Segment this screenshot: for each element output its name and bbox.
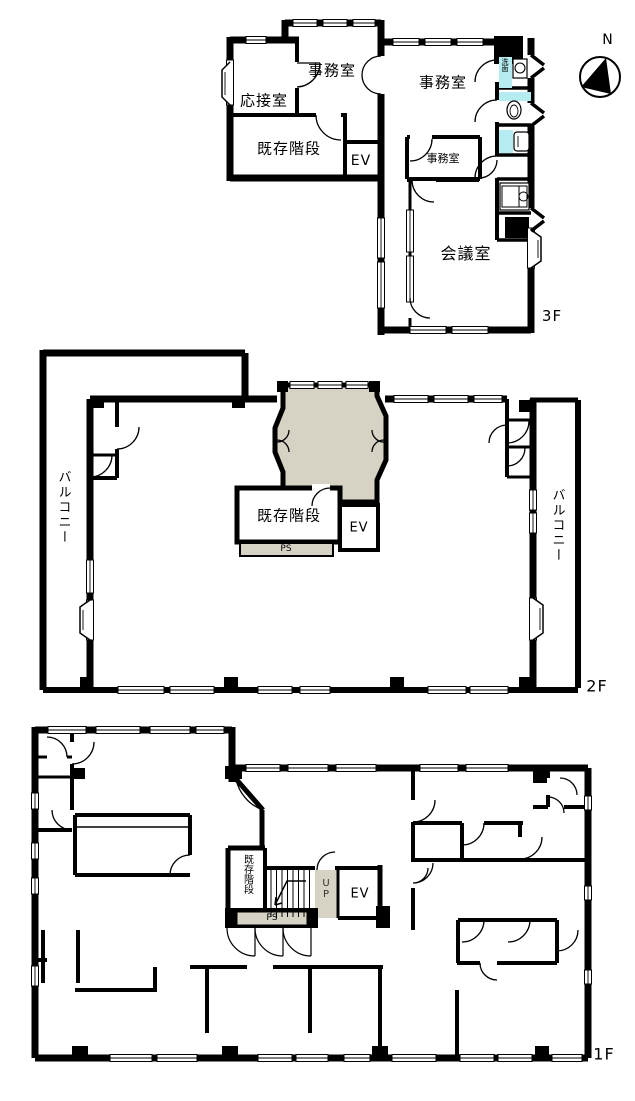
room-label-washbasin-3f: 洗面 bbox=[500, 58, 510, 72]
compass-north-label: N bbox=[602, 32, 613, 48]
stairs-up-label-1f: UP bbox=[321, 878, 332, 900]
door-arcs-3f bbox=[297, 56, 497, 318]
room-label-pipe-shaft-1f: PS bbox=[266, 913, 277, 923]
floor-plan-linework bbox=[0, 0, 635, 1101]
room-label-elevator-1f: EV bbox=[350, 887, 369, 902]
toilet-fixture-1 bbox=[499, 92, 531, 119]
room-label-elevator-3f: EV bbox=[351, 153, 371, 169]
kitchen-sink-fixture bbox=[500, 183, 529, 210]
room-label-office-top-3f: 事務室 bbox=[308, 60, 356, 81]
room-label-reception-3f: 応接室 bbox=[240, 90, 288, 111]
toilet-fixture-2 bbox=[499, 130, 529, 153]
room-label-balcony-right-2f: バルコニー bbox=[548, 488, 567, 563]
room-label-elevator-2f: EV bbox=[349, 521, 368, 536]
floor-1f-plan bbox=[32, 727, 592, 1062]
entrance-fan-doors bbox=[227, 928, 311, 956]
room-label-office-small-3f: 事務室 bbox=[427, 150, 460, 166]
room-label-stairs-3f: 既存階段 bbox=[257, 138, 321, 159]
floor-label-3f: 3F bbox=[542, 307, 562, 325]
room-label-office-main-3f: 事務室 bbox=[419, 72, 467, 93]
room-label-pipe-shaft-2f: PS bbox=[280, 544, 291, 554]
floor-3f-plan bbox=[222, 20, 544, 336]
room-label-stairs-1f: 既存階段 bbox=[240, 854, 255, 894]
room-label-stairs-2f: 既存階段 bbox=[257, 505, 321, 526]
room-label-meeting-3f: 会議室 bbox=[440, 240, 491, 264]
floor-plan-document: 応接室 事務室 事務室 事務室 会議室 既存階段 EV 洗面 3F N バルコニ… bbox=[0, 0, 635, 1101]
compass-north-icon bbox=[580, 57, 620, 97]
floor-label-1f: 1F bbox=[593, 1045, 614, 1064]
room-label-balcony-left-2f: バルコニー bbox=[54, 470, 73, 545]
core-shaded-area bbox=[275, 385, 386, 502]
floor-label-2f: 2F bbox=[586, 677, 607, 696]
